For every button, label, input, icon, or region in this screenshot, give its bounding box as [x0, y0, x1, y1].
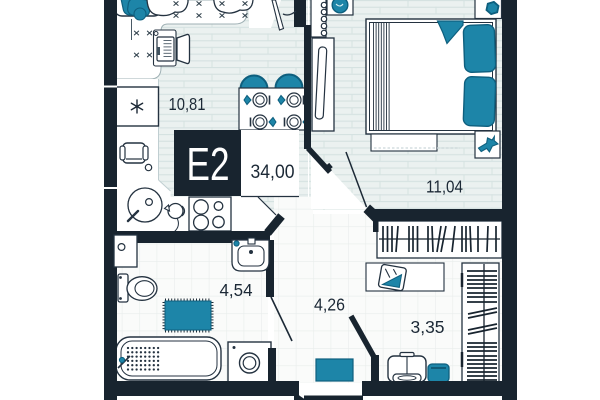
svg-text:E2: E2 — [187, 138, 230, 190]
svg-text:34,00: 34,00 — [251, 162, 295, 183]
svg-text:4,54: 4,54 — [220, 280, 253, 300]
svg-text:11,04: 11,04 — [426, 177, 463, 197]
svg-text:4,26: 4,26 — [314, 295, 345, 315]
svg-text:10,81: 10,81 — [169, 94, 206, 114]
svg-text:3,35: 3,35 — [411, 317, 445, 337]
